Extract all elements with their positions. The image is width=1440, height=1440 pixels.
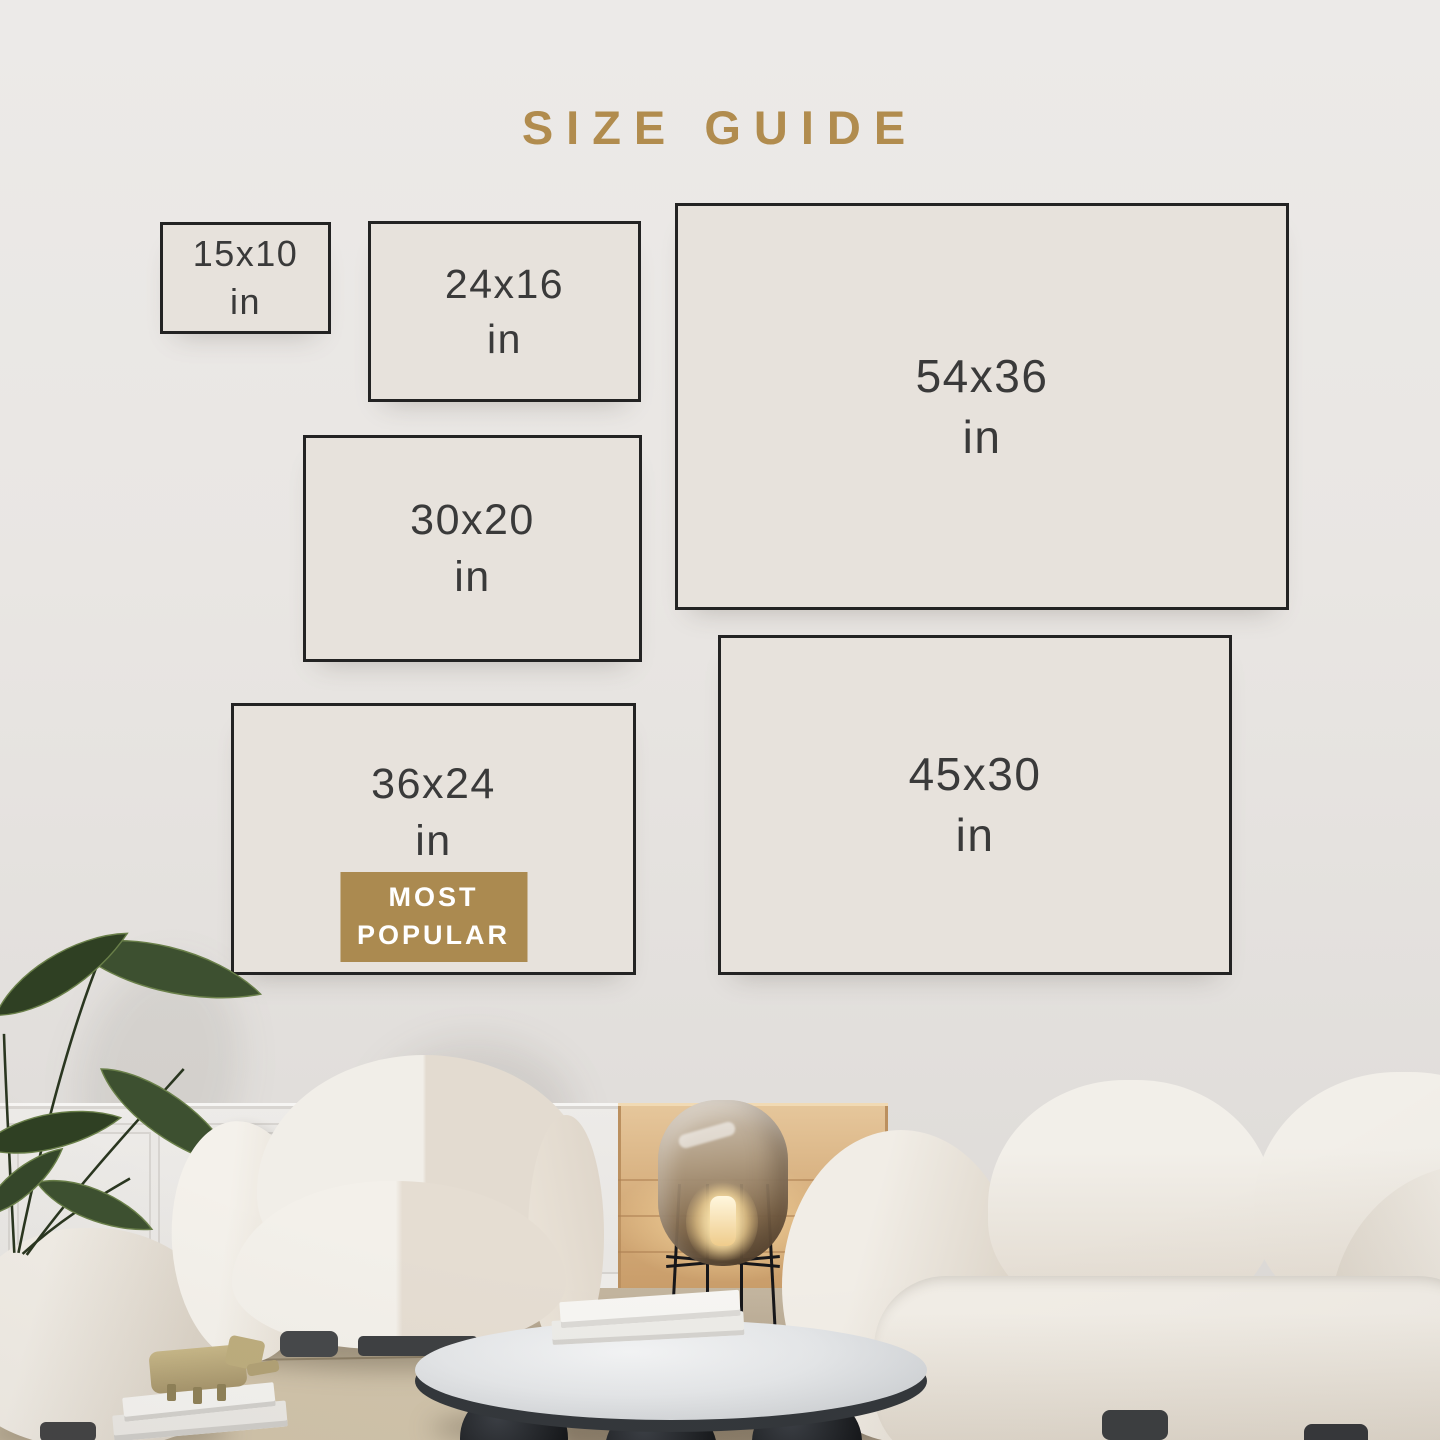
figurine-leg — [193, 1387, 202, 1404]
size-unit: in — [956, 805, 995, 866]
size-unit: in — [963, 407, 1002, 468]
size-unit: in — [230, 278, 261, 326]
floor-book-stack — [105, 1338, 315, 1440]
size-frame-36x24: 36x24 in MOST POPULAR — [231, 703, 636, 975]
size-frame-text: 45x30 in — [909, 744, 1042, 865]
size-frame-text: 24x16 in — [445, 257, 564, 365]
size-frame-24x16: 24x16 in — [368, 221, 641, 402]
badge-line-2: POPULAR — [357, 917, 510, 955]
size-guide-poster: SIZE GUIDE 15x10 in 24x16 in 54x36 in 30… — [0, 0, 1440, 1440]
lamp-bulb — [710, 1196, 736, 1246]
figurine-leg — [217, 1384, 226, 1401]
size-frame-text: 15x10 in — [193, 230, 299, 325]
size-frame-15x10: 15x10 in — [160, 222, 331, 334]
size-unit: in — [415, 813, 451, 870]
size-label: 36x24 — [371, 756, 496, 813]
pouf-foot — [40, 1422, 96, 1440]
size-label: 30x20 — [410, 492, 535, 549]
badge-line-1: MOST — [357, 879, 510, 917]
most-popular-badge: MOST POPULAR — [340, 872, 527, 962]
size-unit: in — [454, 549, 490, 606]
size-label: 24x16 — [445, 257, 564, 311]
figurine-leg — [167, 1384, 176, 1401]
size-frame-45x30: 45x30 in — [718, 635, 1232, 975]
size-label: 45x30 — [909, 744, 1042, 805]
sofa-foot — [1102, 1410, 1168, 1440]
size-frame-text: 54x36 in — [916, 346, 1049, 467]
size-frame-text: 36x24 in — [371, 756, 496, 870]
coffee-table — [400, 1296, 945, 1440]
size-label: 54x36 — [916, 346, 1049, 407]
size-unit: in — [487, 312, 522, 366]
size-frame-54x36: 54x36 in — [675, 203, 1289, 610]
size-frame-text: 30x20 in — [410, 492, 535, 606]
size-label: 15x10 — [193, 230, 299, 278]
size-frame-30x20: 30x20 in — [303, 435, 642, 662]
sofa-foot — [1304, 1424, 1368, 1440]
page-title: SIZE GUIDE — [0, 100, 1440, 155]
